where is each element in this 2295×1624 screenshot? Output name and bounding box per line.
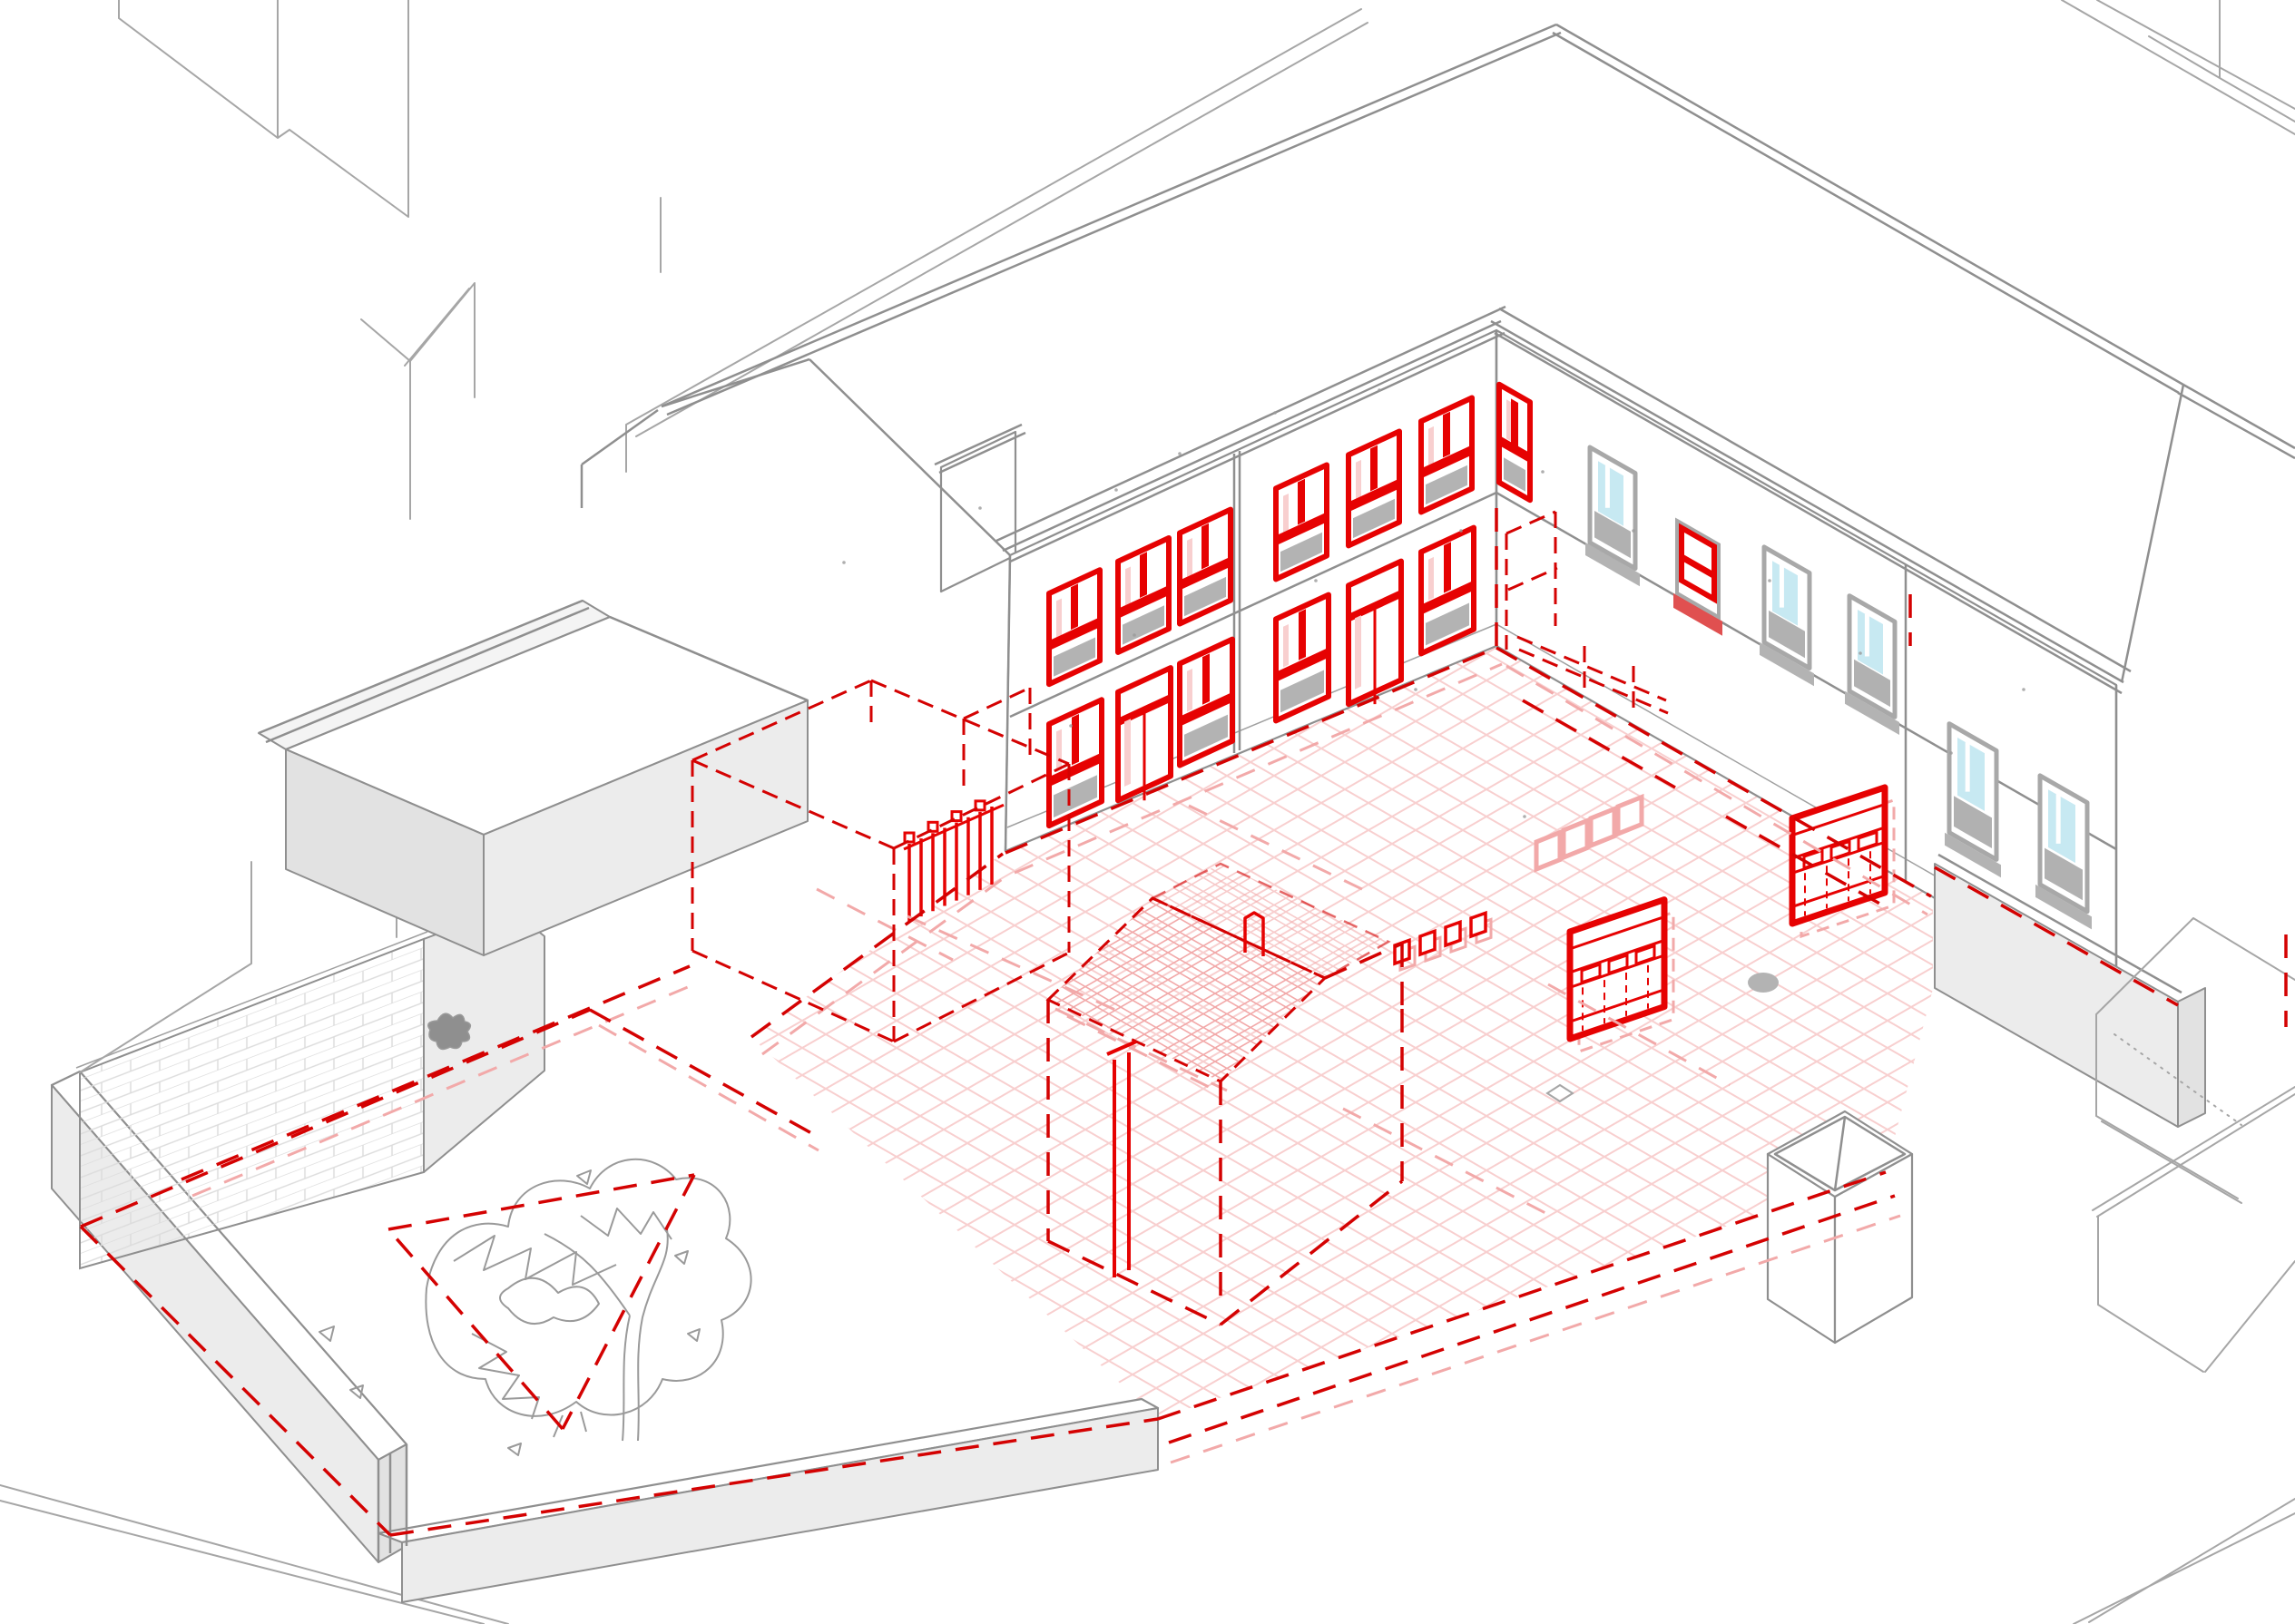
facade-speck xyxy=(1523,815,1526,818)
red-window xyxy=(1180,640,1232,766)
window-mullion xyxy=(1443,412,1450,458)
window-mullion xyxy=(1299,609,1306,660)
roof-hips-right xyxy=(2122,385,2295,682)
red-window xyxy=(1499,385,1530,501)
tree-scribble-3 xyxy=(581,1208,672,1239)
window-glare xyxy=(1283,624,1289,668)
facade-speck xyxy=(1949,751,1953,755)
window-mullion xyxy=(1298,479,1305,525)
red-window xyxy=(1349,432,1399,546)
red-window xyxy=(1276,595,1329,721)
facade-speck xyxy=(1632,529,1635,533)
facade-speck xyxy=(978,506,982,510)
red-square-window xyxy=(1420,931,1435,954)
red-square-window xyxy=(1446,922,1460,945)
facade-speck xyxy=(842,561,846,564)
manhole-ellipse xyxy=(1748,973,1779,993)
red-window xyxy=(1049,570,1100,684)
tree-scribble-4 xyxy=(500,1278,599,1324)
context-building-top-right xyxy=(2062,0,2295,134)
window-glare xyxy=(1056,729,1062,773)
red-window xyxy=(1276,465,1327,580)
red-door xyxy=(1118,668,1171,800)
context-roof-ridge xyxy=(626,9,1368,472)
window-glare xyxy=(1283,494,1289,533)
window-glare xyxy=(1187,669,1192,712)
facade-speck xyxy=(1133,633,1136,637)
red-window xyxy=(1421,528,1474,654)
facade-speck xyxy=(1378,388,1381,392)
window-glare xyxy=(1356,460,1361,499)
window-glare xyxy=(1125,567,1131,606)
tree-canopy-outline xyxy=(426,1159,750,1416)
roof-ridge-right xyxy=(1553,24,2183,393)
red-window xyxy=(1421,398,1472,513)
demolition-dash xyxy=(388,1229,563,1429)
red-square-window xyxy=(1471,913,1486,936)
street-curb-bottom-right xyxy=(2074,1499,2295,1624)
facade-speck xyxy=(1069,724,1073,728)
facade-speck xyxy=(1114,488,1118,492)
facade-speck xyxy=(1273,411,1277,415)
door-glare xyxy=(1124,719,1131,787)
red-door xyxy=(1349,562,1401,705)
drawing-canvas xyxy=(0,0,2295,1624)
window-glare xyxy=(1428,426,1434,465)
window-mullion xyxy=(1072,714,1079,765)
fence-post-cap xyxy=(905,833,914,842)
window-mullion xyxy=(1444,542,1451,592)
tree-sketch xyxy=(319,1159,751,1455)
tree-scribble-2 xyxy=(472,1334,539,1419)
red-window xyxy=(1049,699,1102,826)
red-window xyxy=(1118,538,1169,652)
context-roof-outline xyxy=(119,0,408,217)
window-mullion xyxy=(1071,583,1078,630)
window-glare xyxy=(1056,599,1062,638)
window-mullion xyxy=(1201,523,1209,570)
red-window xyxy=(1180,510,1231,624)
demolition-dash xyxy=(563,1175,694,1429)
window-mullion xyxy=(1140,552,1147,598)
window-mullion xyxy=(1370,445,1378,492)
window-glare xyxy=(1428,557,1434,601)
facade-speck xyxy=(1541,470,1545,474)
gray-wall-return xyxy=(2178,988,2205,1127)
facade-speck xyxy=(1459,529,1463,533)
facade-speck xyxy=(2022,688,2025,691)
door-glare xyxy=(1355,615,1361,690)
utility-box xyxy=(1768,1111,1912,1343)
window-mullion xyxy=(1202,653,1210,704)
facade-speck xyxy=(1314,579,1318,582)
window-glare xyxy=(1187,538,1192,577)
context-rear-pavilion xyxy=(361,283,475,519)
facade-speck xyxy=(1859,651,1862,655)
facade-speck xyxy=(1178,452,1182,455)
window-mullion xyxy=(1511,398,1518,448)
facade-speck xyxy=(1768,579,1771,582)
facade-speck xyxy=(1414,688,1417,691)
